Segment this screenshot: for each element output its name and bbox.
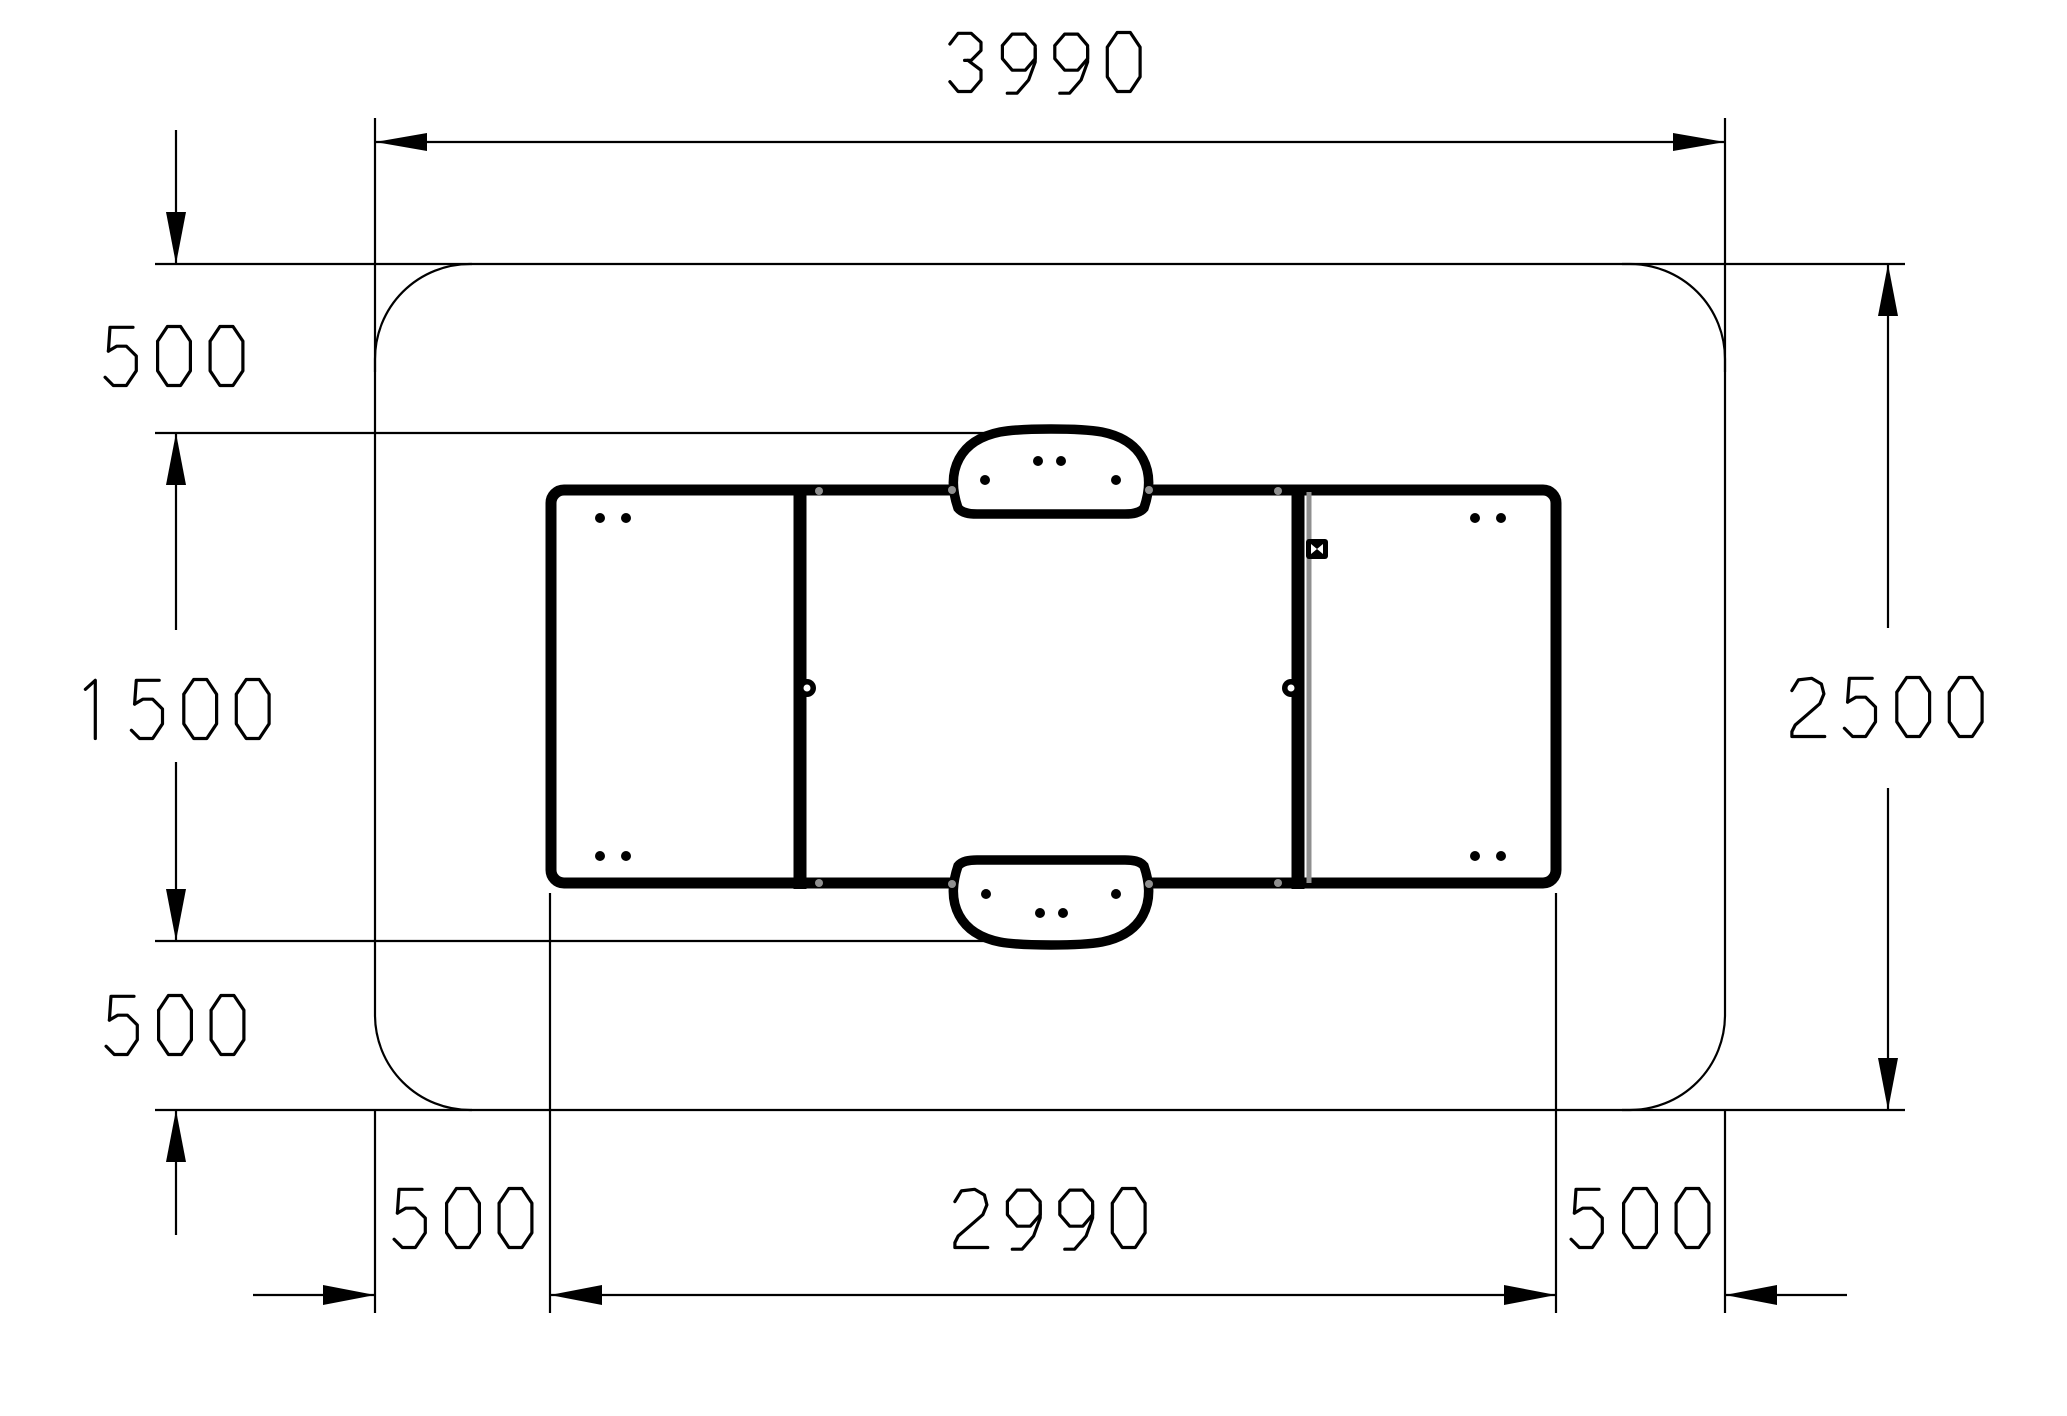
arrow-top-right bbox=[1673, 133, 1725, 151]
dim-clearance-top bbox=[105, 327, 243, 386]
arrow-left-1500-down bbox=[166, 889, 186, 941]
drawing-canvas bbox=[0, 0, 2067, 1416]
arrow-bottom-2990-right bbox=[1504, 1285, 1556, 1305]
arrow-left-500-bottom bbox=[166, 1110, 186, 1162]
bottom-grip bbox=[953, 860, 1148, 945]
arrow-bottom-500-right bbox=[1725, 1285, 1777, 1305]
dim-equipment-width bbox=[955, 1189, 1145, 1250]
arrow-left-500-top bbox=[166, 212, 186, 264]
top-grip bbox=[953, 429, 1148, 514]
clamp-detail bbox=[1306, 539, 1328, 559]
equipment bbox=[551, 429, 1556, 945]
dim-overall-width bbox=[950, 33, 1140, 94]
arrow-bottom-2990-left bbox=[550, 1285, 602, 1305]
dim-equipment-height bbox=[85, 680, 269, 739]
arrow-right-2500-down bbox=[1878, 1058, 1898, 1110]
dim-clearance-right bbox=[1571, 1189, 1709, 1248]
dim-clearance-bottom bbox=[106, 996, 244, 1055]
arrow-top-left bbox=[375, 133, 427, 151]
technical-drawing bbox=[0, 0, 2067, 1416]
dim-clearance-left bbox=[394, 1189, 532, 1248]
equipment-frame bbox=[551, 490, 1556, 883]
arrow-right-2500-up bbox=[1878, 264, 1898, 316]
arrow-bottom-500-left bbox=[323, 1285, 375, 1305]
dim-overall-height bbox=[1792, 678, 1982, 737]
arrow-left-1500-up bbox=[166, 433, 186, 485]
